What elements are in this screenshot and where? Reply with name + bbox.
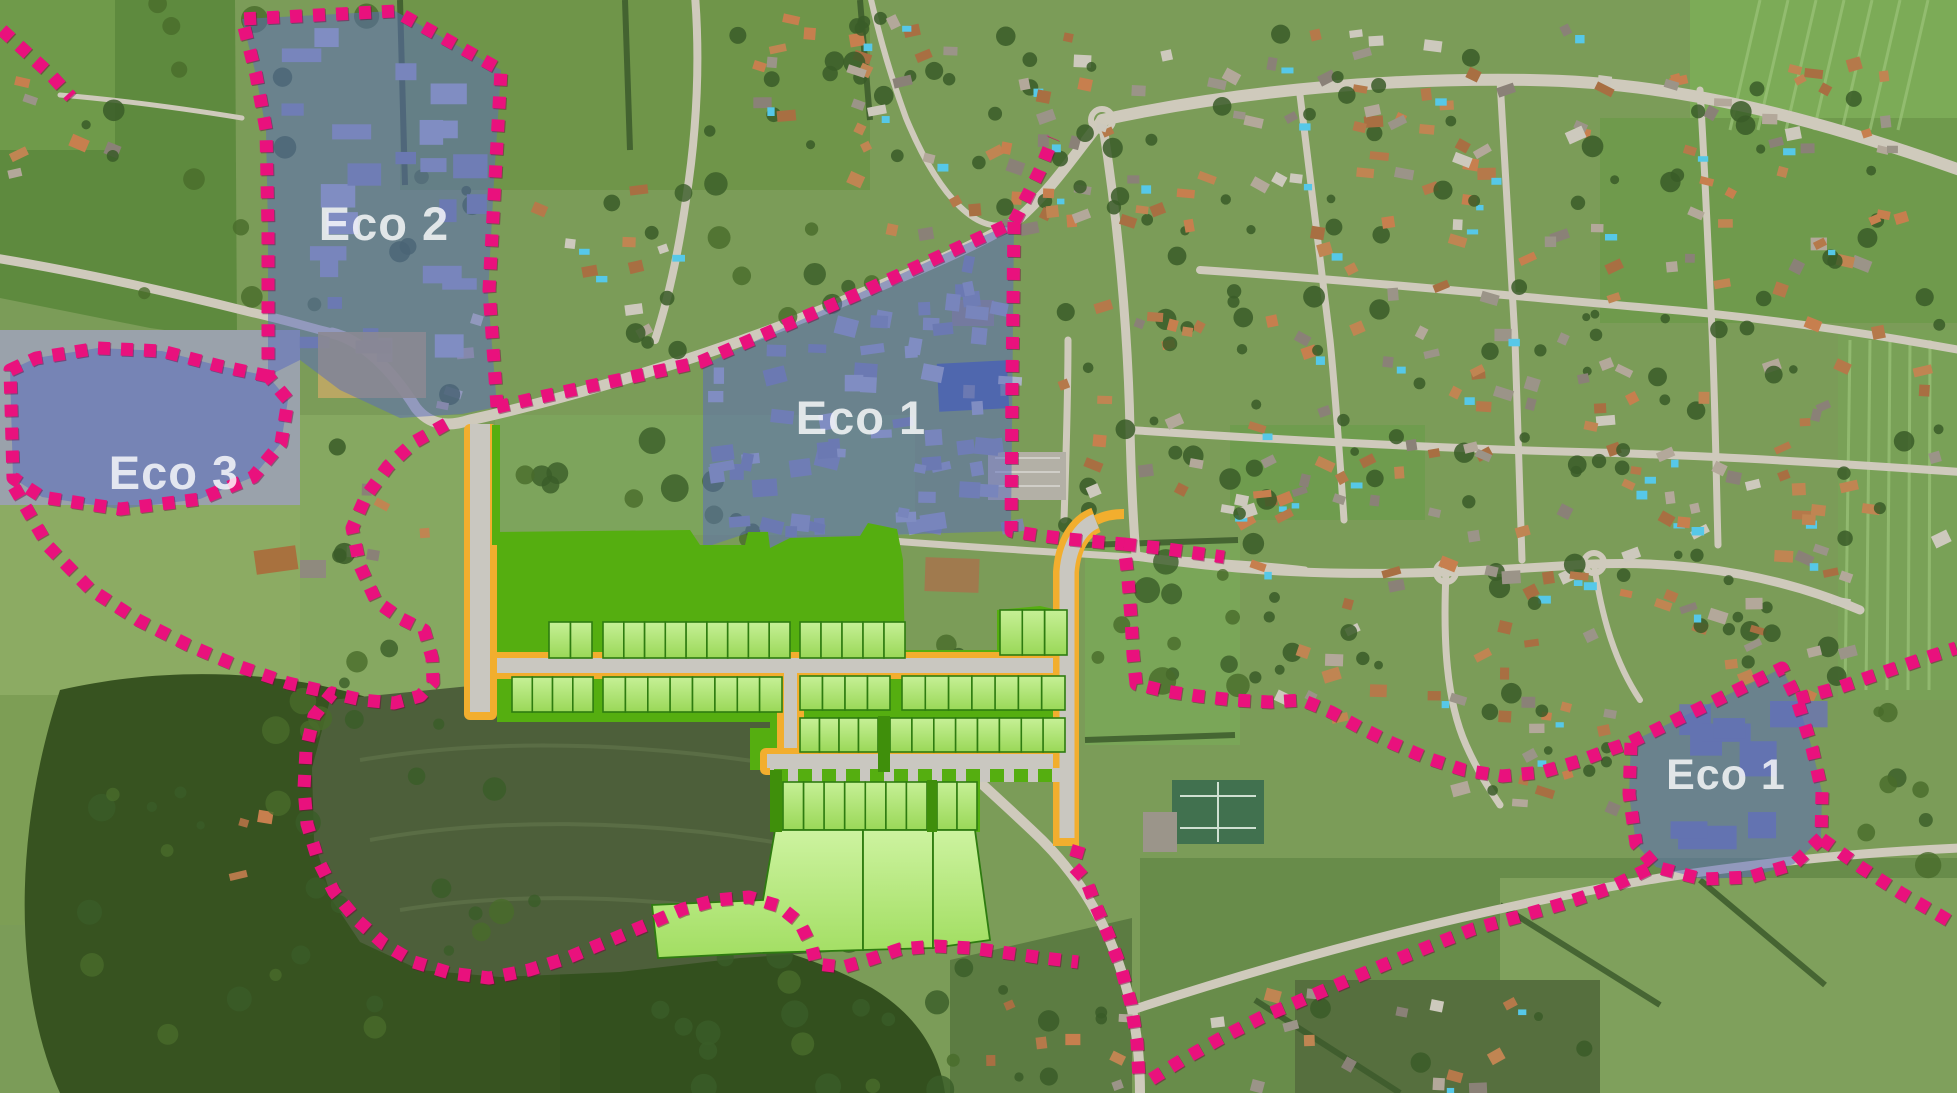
tree [1691,104,1705,118]
tree [1411,1052,1431,1072]
tree [998,985,1008,995]
tree [1534,344,1546,356]
house [1381,216,1395,229]
tree [603,195,620,212]
tree [925,62,943,80]
tree [925,990,949,1014]
plot [937,782,957,830]
tree [1326,219,1343,236]
tree [881,1012,895,1026]
tree [1087,62,1097,72]
tree [138,287,150,299]
house [1428,691,1441,701]
house [1665,491,1676,504]
tree [1237,344,1247,354]
road-surface [497,658,1067,673]
house [1677,516,1691,528]
tree [1103,138,1123,158]
pool [937,164,948,172]
tree [106,788,119,801]
tree [1789,365,1798,374]
tree [1227,296,1239,308]
site-plan-image: Eco 2 Eco 3 Eco 1 Eco 1 [0,0,1957,1093]
plot [769,622,790,658]
plot [603,677,625,712]
tree [1648,367,1667,386]
tree [852,999,870,1017]
pool [579,249,590,255]
farm-building [300,560,326,578]
tree [1271,25,1290,44]
tree [704,125,715,136]
parking-dash [894,769,908,782]
tree [1534,1012,1543,1021]
pool [1518,1009,1526,1015]
pool [1442,701,1449,708]
house [1138,464,1154,478]
house [1529,724,1544,734]
house [1718,219,1733,228]
pool [1605,234,1617,240]
house [1394,466,1404,479]
house [565,238,576,249]
house [1802,514,1816,525]
tree [1857,824,1875,842]
tree [262,716,290,744]
house [1774,550,1793,563]
plot [949,676,972,710]
tree [1511,279,1527,295]
pool [1574,580,1583,586]
tree [1919,813,1933,827]
tree [542,476,560,494]
tree [1933,319,1945,331]
house [1423,39,1442,52]
tree [175,787,187,799]
plot [800,718,820,752]
plot [824,782,845,830]
building [1143,812,1177,852]
tree [329,438,346,455]
plot [925,676,948,710]
plot [800,622,821,658]
tree [729,27,746,44]
tree [1168,247,1187,266]
plot [842,622,863,658]
pool [1556,722,1564,727]
tree [1866,166,1876,176]
plot [1000,610,1022,655]
tree [639,427,666,454]
tree [651,1001,669,1019]
tree [1371,78,1386,93]
plot [956,718,978,752]
tree [1374,661,1383,670]
tree [732,267,751,286]
plot [978,718,1000,752]
tree [1310,998,1331,1019]
plot [859,718,879,752]
tree [291,945,310,964]
divider [927,780,937,832]
house [1714,98,1732,106]
house [1092,434,1106,447]
road-surface [784,673,797,757]
tree [1226,674,1250,698]
tree [1251,400,1261,410]
pool [1435,98,1447,105]
tree [1723,623,1735,635]
tree [183,168,205,190]
plot [821,622,842,658]
tree [241,286,263,308]
pool [1057,199,1064,205]
house [1038,134,1049,147]
zone-label-eco-3: Eco 3 [109,446,239,499]
tree [483,777,507,801]
tree [954,958,973,977]
tree [1014,1072,1023,1081]
tree [891,149,904,162]
plot [553,677,573,712]
tree [1337,414,1349,426]
pool [1694,615,1701,623]
house [1265,314,1278,328]
plot [995,676,1018,710]
tree [1740,321,1755,336]
pool [1316,356,1325,364]
house [886,223,899,236]
plot [783,782,804,830]
house [986,1055,995,1066]
tree [660,291,675,306]
plot [863,622,884,658]
plot [648,677,670,712]
tree [1519,432,1530,443]
house [1310,226,1325,241]
house [1476,401,1492,412]
plot [728,622,749,658]
tree [171,62,187,78]
house [1289,173,1302,184]
road-surface [767,754,1073,768]
tree [1332,71,1344,83]
house [1630,466,1641,475]
tree [265,791,290,816]
tree [1916,288,1934,306]
house [1521,697,1535,708]
pool [1491,178,1501,185]
plot [865,782,886,830]
house [1304,1035,1315,1046]
pool [1508,339,1519,346]
tree [1481,343,1498,360]
tree [996,26,1016,46]
house [1177,188,1195,198]
tree [1873,707,1884,718]
tree [1468,195,1480,207]
tree [668,341,686,359]
pool [1397,367,1406,374]
tree [855,21,870,36]
plot [884,622,905,658]
tree [107,150,119,162]
tree [806,140,815,149]
house [1369,495,1379,507]
tree [433,719,444,730]
house [1432,1078,1444,1091]
tree [528,895,541,908]
plot [737,677,759,712]
plot [934,718,956,752]
tree [1092,651,1105,664]
tree [1372,226,1390,244]
tree [80,953,104,977]
tree [1590,310,1599,319]
house [1725,659,1738,670]
tree [675,184,693,202]
tree [364,1016,387,1039]
plot [820,718,840,752]
pool [1810,563,1819,571]
plot [571,622,593,658]
house [1880,115,1891,128]
tree [1340,624,1357,641]
plot [549,622,571,658]
pool [1292,503,1300,508]
plot [972,676,995,710]
tree [1350,447,1359,456]
tree [1249,671,1261,683]
tree [675,1018,693,1036]
tree [1116,419,1136,439]
parking-dash [942,769,956,782]
house [1356,167,1374,178]
tree [1233,507,1246,520]
plot [845,676,868,710]
tree [81,120,90,129]
tree [1052,151,1068,167]
tree [1243,533,1265,555]
tree [1756,291,1771,306]
tree [432,878,452,898]
tree [645,226,659,240]
house [1406,439,1418,451]
tree [972,156,986,170]
green-sliver [492,425,500,545]
pool [1447,1088,1454,1093]
tree [1220,655,1238,673]
tree [1660,314,1670,324]
tree [704,172,727,195]
tree [1912,781,1929,798]
tree [781,1000,808,1027]
tree [444,945,454,955]
house [1591,224,1604,232]
house [1879,70,1890,82]
house [1387,288,1399,301]
tree [1462,49,1480,67]
road-hook [1096,514,1124,520]
pool [1636,491,1647,500]
plot-large [863,830,933,950]
tree [1356,652,1369,665]
pool [1281,68,1293,74]
house [1871,325,1886,340]
pool [1332,253,1343,260]
tree [1303,108,1316,121]
plot [902,676,925,710]
plot [823,676,846,710]
plot [906,782,927,830]
plot [886,782,907,830]
tree [1571,196,1585,210]
tree [161,844,174,857]
pool [1698,156,1708,162]
house [1800,418,1811,426]
plot [845,782,866,830]
tree [1338,86,1356,104]
pool [1783,148,1795,155]
house [1046,205,1059,218]
house [1919,384,1930,396]
tree [1837,531,1852,546]
tree [1233,308,1253,328]
plot [665,622,686,658]
tree [366,996,383,1013]
tree [1690,549,1703,562]
tree [1269,592,1280,603]
tree [1225,610,1240,625]
tree [1168,446,1182,460]
plot [839,718,859,752]
tree [1264,611,1275,622]
tree [1756,144,1765,153]
pool [596,276,607,282]
tree [1312,345,1323,356]
plot [715,677,737,712]
tree [1528,597,1541,610]
divider [770,770,782,832]
tree [1275,665,1285,675]
tree [196,821,204,829]
tree [1827,254,1842,269]
tree [1750,81,1765,96]
tree [233,219,249,235]
tree [1246,225,1255,234]
house [1745,598,1762,610]
plot [645,622,666,658]
tree [626,323,646,343]
plot [957,782,977,830]
parking-dash [798,769,812,782]
tree [1590,329,1602,341]
pool [1299,123,1310,130]
parking-dash [966,769,980,782]
plot [999,718,1021,752]
tree [1303,286,1325,308]
tree [1366,470,1384,488]
tree [825,51,844,70]
tree [346,651,367,672]
tree [791,1032,814,1055]
house [1792,483,1806,496]
tree [988,107,1002,121]
tree [147,802,157,812]
house [419,528,430,539]
tree [1736,115,1756,135]
tree [270,969,282,981]
pool [1141,185,1151,193]
tree [1846,91,1862,107]
house [1131,85,1145,96]
house [1453,219,1463,230]
house [1762,114,1777,125]
tree [1040,1067,1058,1085]
house [1512,799,1528,808]
house [622,237,636,247]
house [1685,254,1695,263]
parking-dash [1014,769,1028,782]
tree [947,1054,960,1067]
plot [804,782,825,830]
house [1127,175,1139,183]
tree [1874,502,1886,514]
parking-dash [822,769,836,782]
tree [1221,194,1231,204]
plot [707,622,728,658]
zone-label-eco-2: Eco 2 [319,197,449,250]
tree [1217,569,1229,581]
tree [1763,624,1781,642]
tree [624,489,643,508]
tree [1536,704,1549,717]
house [803,27,816,40]
tree [1724,575,1734,585]
plot [625,677,647,712]
house [1370,684,1387,697]
pool [1263,433,1273,440]
parking-dash [846,769,860,782]
tree [1617,568,1631,582]
pool [1304,184,1312,190]
house [1036,89,1052,104]
tree [708,226,731,249]
house [1594,403,1607,413]
tree [516,465,535,484]
house [1545,236,1556,247]
house [766,57,777,69]
house [1500,668,1509,680]
tree [1501,683,1522,704]
tree [777,970,800,993]
pool [1828,250,1835,255]
house [1467,530,1480,543]
tree [1482,704,1499,721]
tree [1592,454,1606,468]
plot [532,677,552,712]
parking-dash [990,769,1004,782]
pool [1584,582,1597,590]
pool [1467,229,1478,234]
tree [696,1020,721,1045]
plot [748,622,769,658]
plot [912,718,934,752]
tree [469,906,483,920]
house [1421,88,1433,101]
tree [1083,363,1094,374]
pool [1671,460,1678,468]
